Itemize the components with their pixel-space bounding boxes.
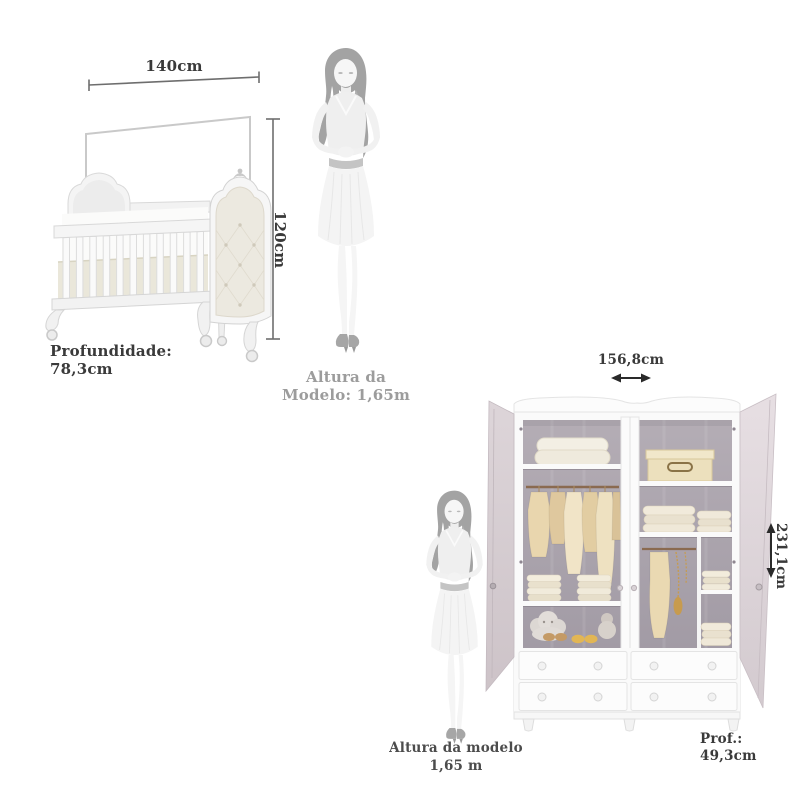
model-silhouette-bottom [426,491,482,744]
wardrobe-depth-value: 49,3cm [700,748,757,765]
crib-height-label: 120cm [271,211,289,268]
drawer [631,652,737,680]
shelf [639,532,732,537]
door-knob [490,583,496,589]
folded-clothes-stack [702,571,730,590]
hanging-dress [650,552,671,638]
wardrobe-top-panel [514,397,740,412]
model-height-caption-bottom-line1: Altura da modelo [382,740,530,758]
model-height-caption-top-line1: Altura da [270,368,422,386]
shelf [701,590,732,594]
crib-illustration [46,117,271,362]
crib-leg-left [46,310,64,331]
tufted-panel [216,187,264,317]
model-height-caption-top-line2: Modelo: 1,65m [270,386,422,404]
crib-leg-right [244,322,258,352]
wardrobe-feet [523,719,739,731]
drawer [519,652,627,680]
plinth [514,712,740,719]
caster-wheel [47,330,57,340]
wardrobe-depth-caption: Prof.: [700,731,757,748]
model-silhouette-top [312,48,380,353]
door-knob [756,584,762,590]
wardrobe-illustration [486,394,776,731]
crib-depth-label: Profundidade: 78,3cm [50,342,172,379]
wardrobe-width-measure-arrow [611,374,651,383]
crib-depth-caption: Profundidade: [50,342,172,360]
furniture-dimensions-diagram: 140cm 120cm Profundidade: 78,3cm Altura … [0,0,800,800]
wardrobe-door-left [486,401,514,691]
model-height-caption-top: Altura da Modelo: 1,65m [270,368,422,405]
wardrobe-width-label: 156,8cm [595,352,667,368]
folded-towels [701,623,731,646]
shelf [523,464,621,469]
door-knob [631,585,636,590]
crib-depth-value: 78,3cm [50,360,172,378]
shelf [639,481,732,486]
crown-ornament-dot [238,169,243,174]
model-height-caption-bottom-line2: 1,65 m [382,758,530,776]
pillows [535,438,610,465]
caster-wheel [247,351,258,362]
wardrobe-height-label: 231,1cm [773,523,789,589]
shelf [523,601,621,606]
model-height-caption-bottom: Altura da modelo 1,65 m [382,740,530,775]
drawer [631,683,737,711]
vertical-divider [697,537,701,648]
caster-wheel [218,337,227,346]
drawer [519,683,627,711]
door-knob [617,585,622,590]
wardrobe-depth-label: Prof.: 49,3cm [700,731,757,765]
crib-width-label: 140cm [104,57,244,75]
caster-wheel [201,336,212,347]
storage-box [646,450,714,481]
